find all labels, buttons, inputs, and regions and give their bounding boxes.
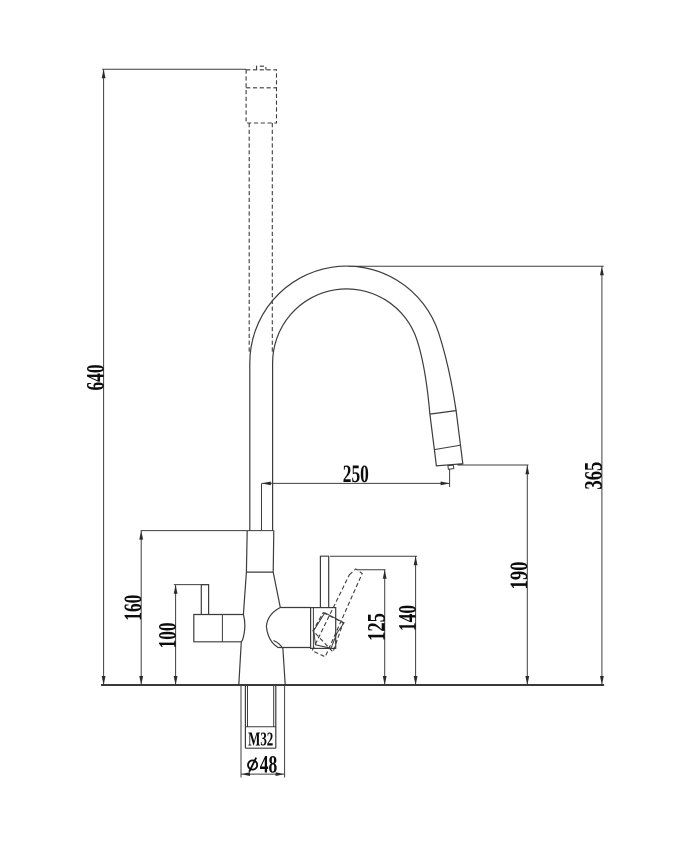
svg-text:190: 190 bbox=[506, 562, 533, 590]
svg-text:48: 48 bbox=[260, 751, 278, 778]
svg-text:140: 140 bbox=[394, 605, 421, 631]
svg-text:M32: M32 bbox=[248, 729, 273, 751]
svg-text:250: 250 bbox=[343, 461, 369, 488]
svg-text:125: 125 bbox=[363, 613, 390, 641]
svg-text:640: 640 bbox=[82, 365, 109, 391]
svg-text:100: 100 bbox=[154, 622, 181, 648]
svg-text:160: 160 bbox=[120, 595, 147, 621]
svg-text:365: 365 bbox=[581, 462, 608, 490]
